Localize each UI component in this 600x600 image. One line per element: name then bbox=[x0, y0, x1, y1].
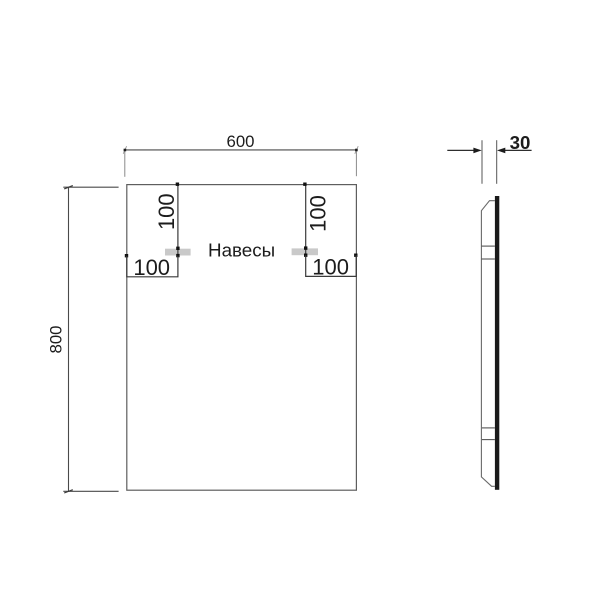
svg-text:800: 800 bbox=[46, 326, 65, 354]
svg-text:100: 100 bbox=[305, 195, 330, 232]
svg-text:100: 100 bbox=[312, 254, 349, 279]
svg-text:100: 100 bbox=[154, 193, 179, 230]
svg-text:100: 100 bbox=[133, 255, 170, 280]
svg-text:30: 30 bbox=[510, 132, 531, 153]
svg-text:Навесы: Навесы bbox=[208, 240, 275, 261]
svg-text:600: 600 bbox=[227, 132, 255, 151]
